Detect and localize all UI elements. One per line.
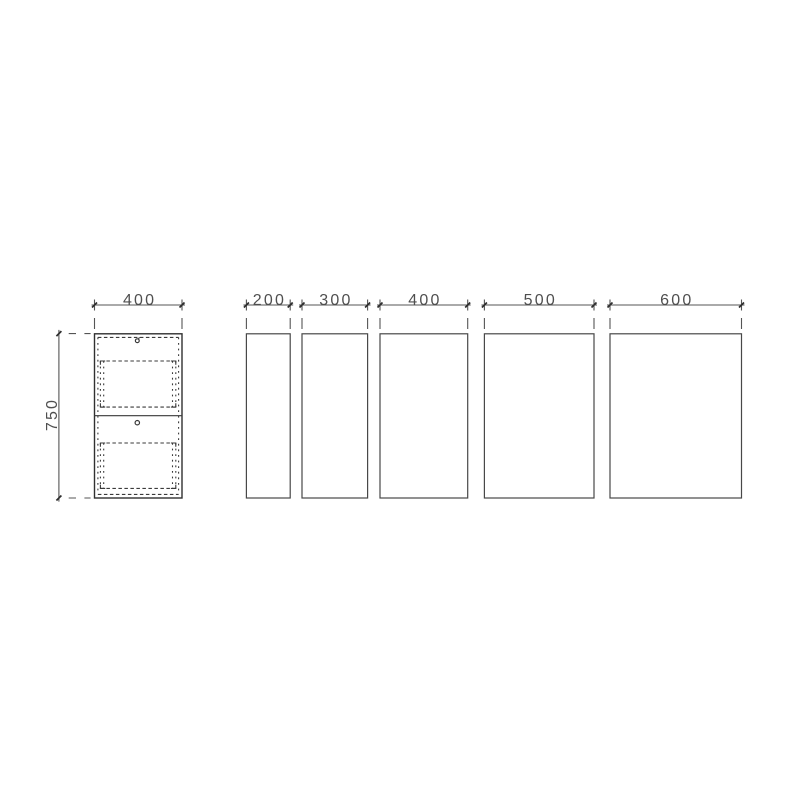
svg-text:200: 200 [253, 292, 286, 309]
svg-text:300: 300 [319, 292, 352, 309]
svg-text:500: 500 [524, 292, 557, 309]
svg-text:750: 750 [44, 398, 61, 431]
svg-text:400: 400 [408, 292, 441, 309]
svg-text:600: 600 [660, 292, 693, 309]
svg-text:400: 400 [123, 292, 156, 309]
